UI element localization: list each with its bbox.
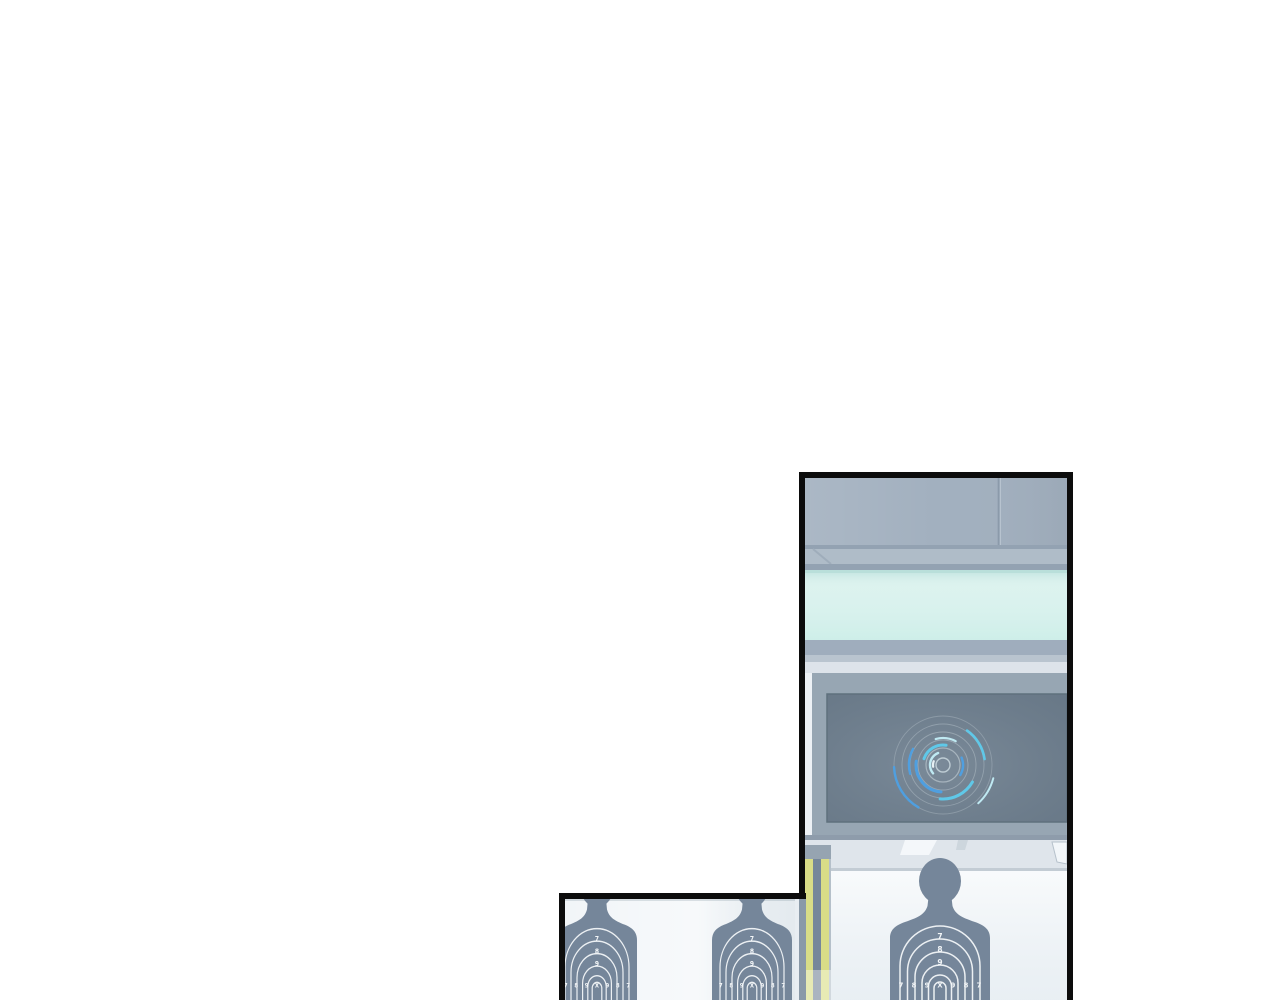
pole-light-wash [805,970,831,1000]
screen-left-gap [805,673,812,835]
comic-page: { "page": { "background": "#ffffff", "pa… [0,0,1280,1000]
trim-band-dark [805,640,1067,655]
bezel-bottom-line [805,835,1067,840]
ledge-line [805,545,1067,549]
lane-divider-light [795,899,799,1000]
targets-scene [565,899,806,1000]
targets-panel [565,899,806,1000]
pole-cap [805,845,831,859]
range-scene [805,478,1067,1000]
striped-pole [805,845,831,1000]
trim-band-light [805,662,1067,673]
trim-band-mid [805,655,1067,662]
ledge-band [805,549,1067,564]
lane-divider [799,899,806,1000]
range-panel [805,478,1067,1000]
range-panel-border-right [1067,472,1073,1000]
glass-top-edge [805,570,1067,573]
